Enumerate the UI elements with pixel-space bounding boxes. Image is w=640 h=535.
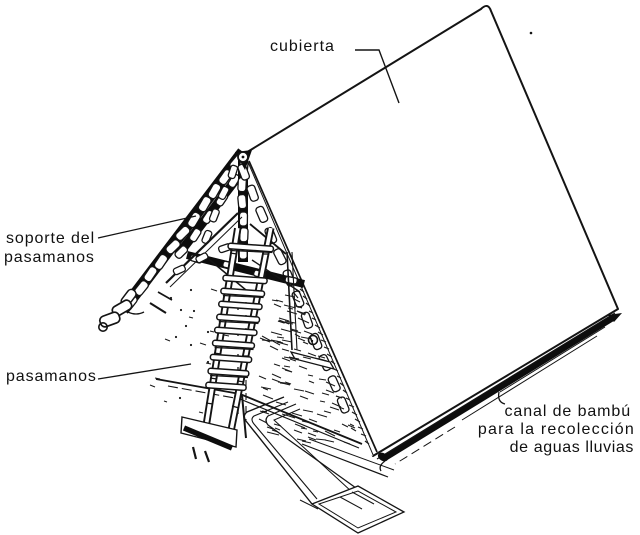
svg-text:pasamanos: pasamanos [6,368,97,385]
svg-text:pasamanos: pasamanos [4,249,95,266]
svg-text:canal de bambú: canal de bambú [505,403,631,420]
svg-text:cubierta: cubierta [270,38,335,55]
svg-text:de aguas lluvias: de aguas lluvias [510,439,634,456]
svg-text:soporte del: soporte del [6,230,95,247]
svg-text:para la recolección: para la recolección [478,421,635,438]
